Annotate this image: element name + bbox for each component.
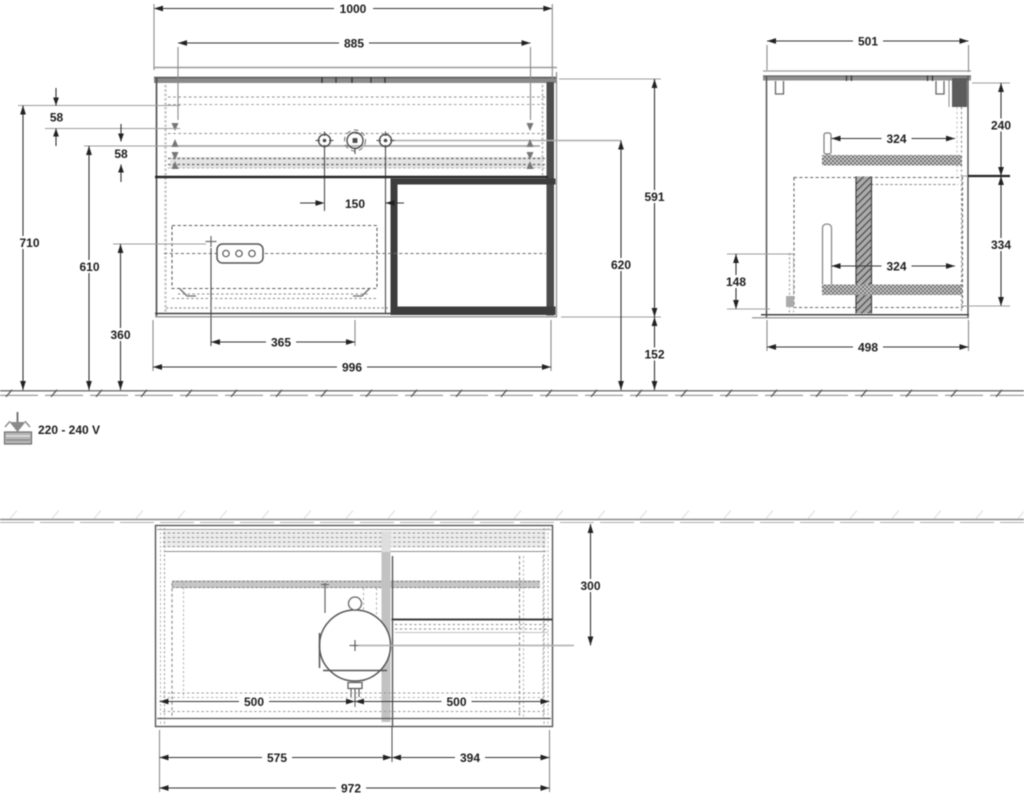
svg-text:500: 500: [446, 695, 466, 709]
svg-text:710: 710: [19, 236, 39, 250]
svg-text:501: 501: [858, 35, 878, 49]
svg-text:575: 575: [267, 751, 287, 765]
svg-text:152: 152: [644, 348, 664, 362]
svg-text:365: 365: [271, 336, 291, 350]
svg-text:240: 240: [991, 119, 1011, 133]
svg-text:324: 324: [886, 260, 906, 274]
svg-text:58: 58: [114, 147, 128, 161]
svg-text:1000: 1000: [340, 2, 367, 16]
svg-text:620: 620: [611, 258, 631, 272]
svg-text:996: 996: [342, 361, 362, 375]
svg-text:885: 885: [344, 37, 364, 51]
svg-text:150: 150: [345, 197, 365, 211]
svg-text:394: 394: [460, 751, 480, 765]
svg-text:972: 972: [341, 782, 361, 796]
svg-text:58: 58: [50, 111, 64, 125]
svg-text:148: 148: [726, 275, 746, 289]
svg-text:498: 498: [858, 341, 878, 355]
svg-text:300: 300: [580, 579, 600, 593]
svg-text:220 - 240 V: 220 - 240 V: [38, 423, 100, 437]
svg-text:334: 334: [991, 238, 1011, 252]
svg-text:500: 500: [244, 695, 264, 709]
svg-text:610: 610: [79, 260, 99, 274]
svg-text:591: 591: [644, 190, 664, 204]
svg-text:360: 360: [110, 328, 130, 342]
svg-text:324: 324: [886, 132, 906, 146]
